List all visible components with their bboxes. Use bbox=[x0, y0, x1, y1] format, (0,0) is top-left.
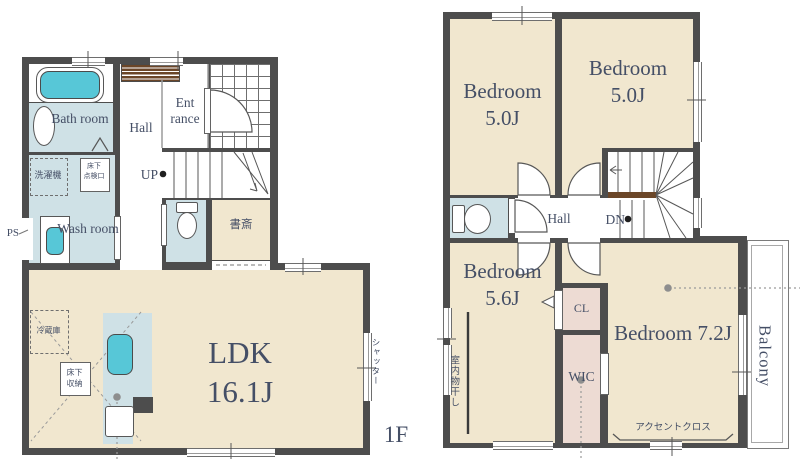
window bbox=[285, 263, 321, 272]
bath-room-label: Bath room bbox=[40, 111, 120, 127]
door-opening bbox=[518, 236, 550, 243]
2f-walk-in-closet bbox=[563, 335, 600, 443]
1f-toilet-door-leaf bbox=[161, 204, 167, 246]
window bbox=[493, 441, 553, 450]
door-opening bbox=[509, 199, 515, 233]
door-opening bbox=[568, 195, 600, 200]
window bbox=[650, 441, 682, 450]
pipe-space-slot bbox=[22, 218, 33, 260]
kitchen-sink bbox=[107, 334, 133, 375]
closet-door-leaf bbox=[554, 290, 563, 330]
kitchen-stove bbox=[105, 406, 134, 437]
floor-1f-label: 1F bbox=[372, 421, 420, 448]
1f-hall-ldk-opening bbox=[120, 263, 162, 270]
2f-toilet-bowl bbox=[464, 204, 491, 234]
ldk-label: LDK 16.1J bbox=[178, 334, 302, 412]
2f-entry-nook bbox=[562, 243, 608, 283]
window bbox=[150, 57, 183, 66]
bedroom-southwest-label: Bedroom 5.6J bbox=[450, 258, 555, 313]
bedroom-right-label: Bedroom 5.0J bbox=[570, 55, 686, 110]
refrigerator-label: 冷蔵庫 bbox=[31, 326, 66, 335]
window bbox=[693, 62, 702, 142]
2f-stair-handrail bbox=[608, 192, 656, 198]
pipe-space-label: PS bbox=[0, 227, 19, 240]
up-label: UP bbox=[122, 167, 158, 183]
wic-label: WIC bbox=[563, 369, 600, 385]
dn-label: DN bbox=[597, 212, 625, 228]
hall-1f-label: Hall bbox=[120, 120, 162, 136]
bedroom-left-label: Bedroom 5.0J bbox=[450, 78, 555, 133]
study-label: 書斎 bbox=[212, 219, 270, 233]
window bbox=[72, 57, 105, 66]
1f-staircase bbox=[162, 152, 270, 198]
entrance-label: Ent rance bbox=[163, 95, 207, 127]
window bbox=[492, 12, 552, 21]
balcony-label: Balcony bbox=[755, 296, 774, 416]
window bbox=[738, 315, 747, 395]
1f-entrance-tile-porch bbox=[210, 64, 270, 148]
floor-plan: Bath room Hall Ent rance UP Wash room 書斎… bbox=[0, 0, 800, 459]
underfloor-access-label: 床下 点検口 bbox=[81, 162, 107, 182]
wash-room-label: Wash room bbox=[48, 221, 128, 237]
2f-bedroom-right-ext bbox=[562, 148, 602, 195]
hall-2f-label: Hall bbox=[536, 211, 582, 227]
closet-label: CL bbox=[563, 301, 600, 315]
1f-toilet-bowl bbox=[177, 212, 197, 239]
underfloor-storage-label: 床下 収納 bbox=[61, 367, 88, 389]
accent-cloth-label: アクセントクロス bbox=[608, 423, 738, 434]
wic-door-leaf bbox=[600, 353, 609, 395]
window bbox=[693, 198, 702, 228]
door-opening bbox=[518, 195, 550, 200]
1f-study-sliding-door bbox=[212, 261, 270, 270]
bedroom-main-label: Bedroom 7.2J bbox=[614, 320, 732, 347]
door-opening bbox=[568, 236, 600, 243]
window bbox=[187, 448, 275, 457]
indoor-drying-label: 室内物干し bbox=[447, 333, 458, 429]
shutter-label: シャッター bbox=[371, 331, 381, 393]
laundry-machine-label: 洗濯機 bbox=[31, 170, 65, 181]
1f-kitchen-wall-notch bbox=[133, 397, 153, 413]
1f-shoe-cabinet bbox=[121, 64, 180, 82]
bathtub bbox=[40, 71, 100, 99]
